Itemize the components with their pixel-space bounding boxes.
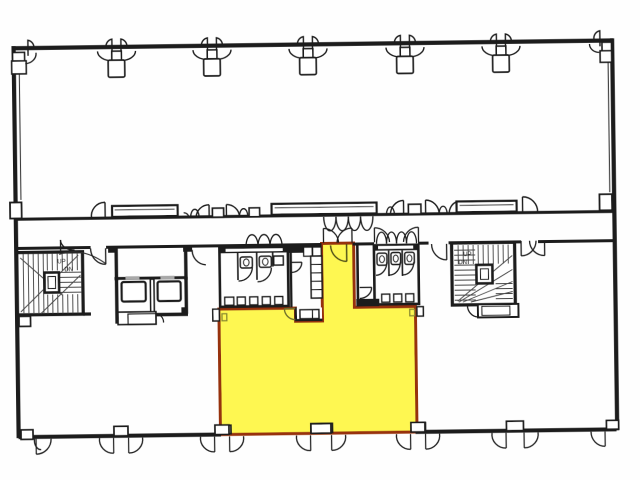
svg-text:UP: UP <box>463 252 471 258</box>
svg-text:DN: DN <box>64 267 73 273</box>
svg-text:UP: UP <box>57 259 65 265</box>
svg-text:DN: DN <box>458 260 467 266</box>
